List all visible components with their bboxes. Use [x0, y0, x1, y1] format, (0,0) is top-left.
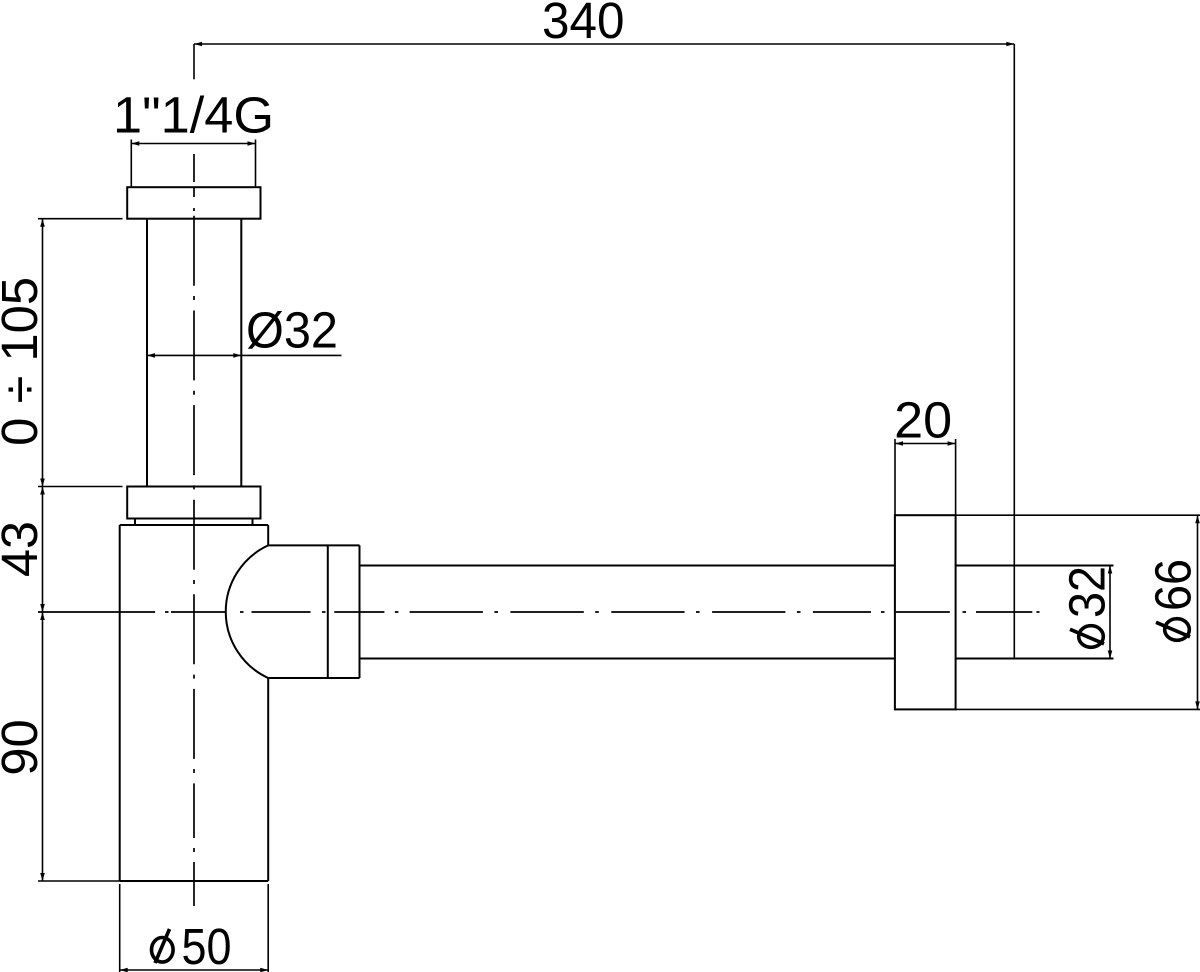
svg-text:1"1/4G: 1"1/4G [113, 87, 274, 144]
svg-text:43: 43 [0, 521, 48, 577]
svg-text:50: 50 [182, 918, 232, 972]
svg-text:340: 340 [542, 0, 625, 49]
svg-text:Ø32: Ø32 [246, 302, 338, 359]
svg-text:0 ÷ 105: 0 ÷ 105 [0, 277, 48, 446]
svg-text:66: 66 [1145, 559, 1200, 611]
svg-text:90: 90 [0, 719, 48, 776]
svg-text:32: 32 [1059, 566, 1116, 618]
svg-text:20: 20 [894, 392, 952, 449]
